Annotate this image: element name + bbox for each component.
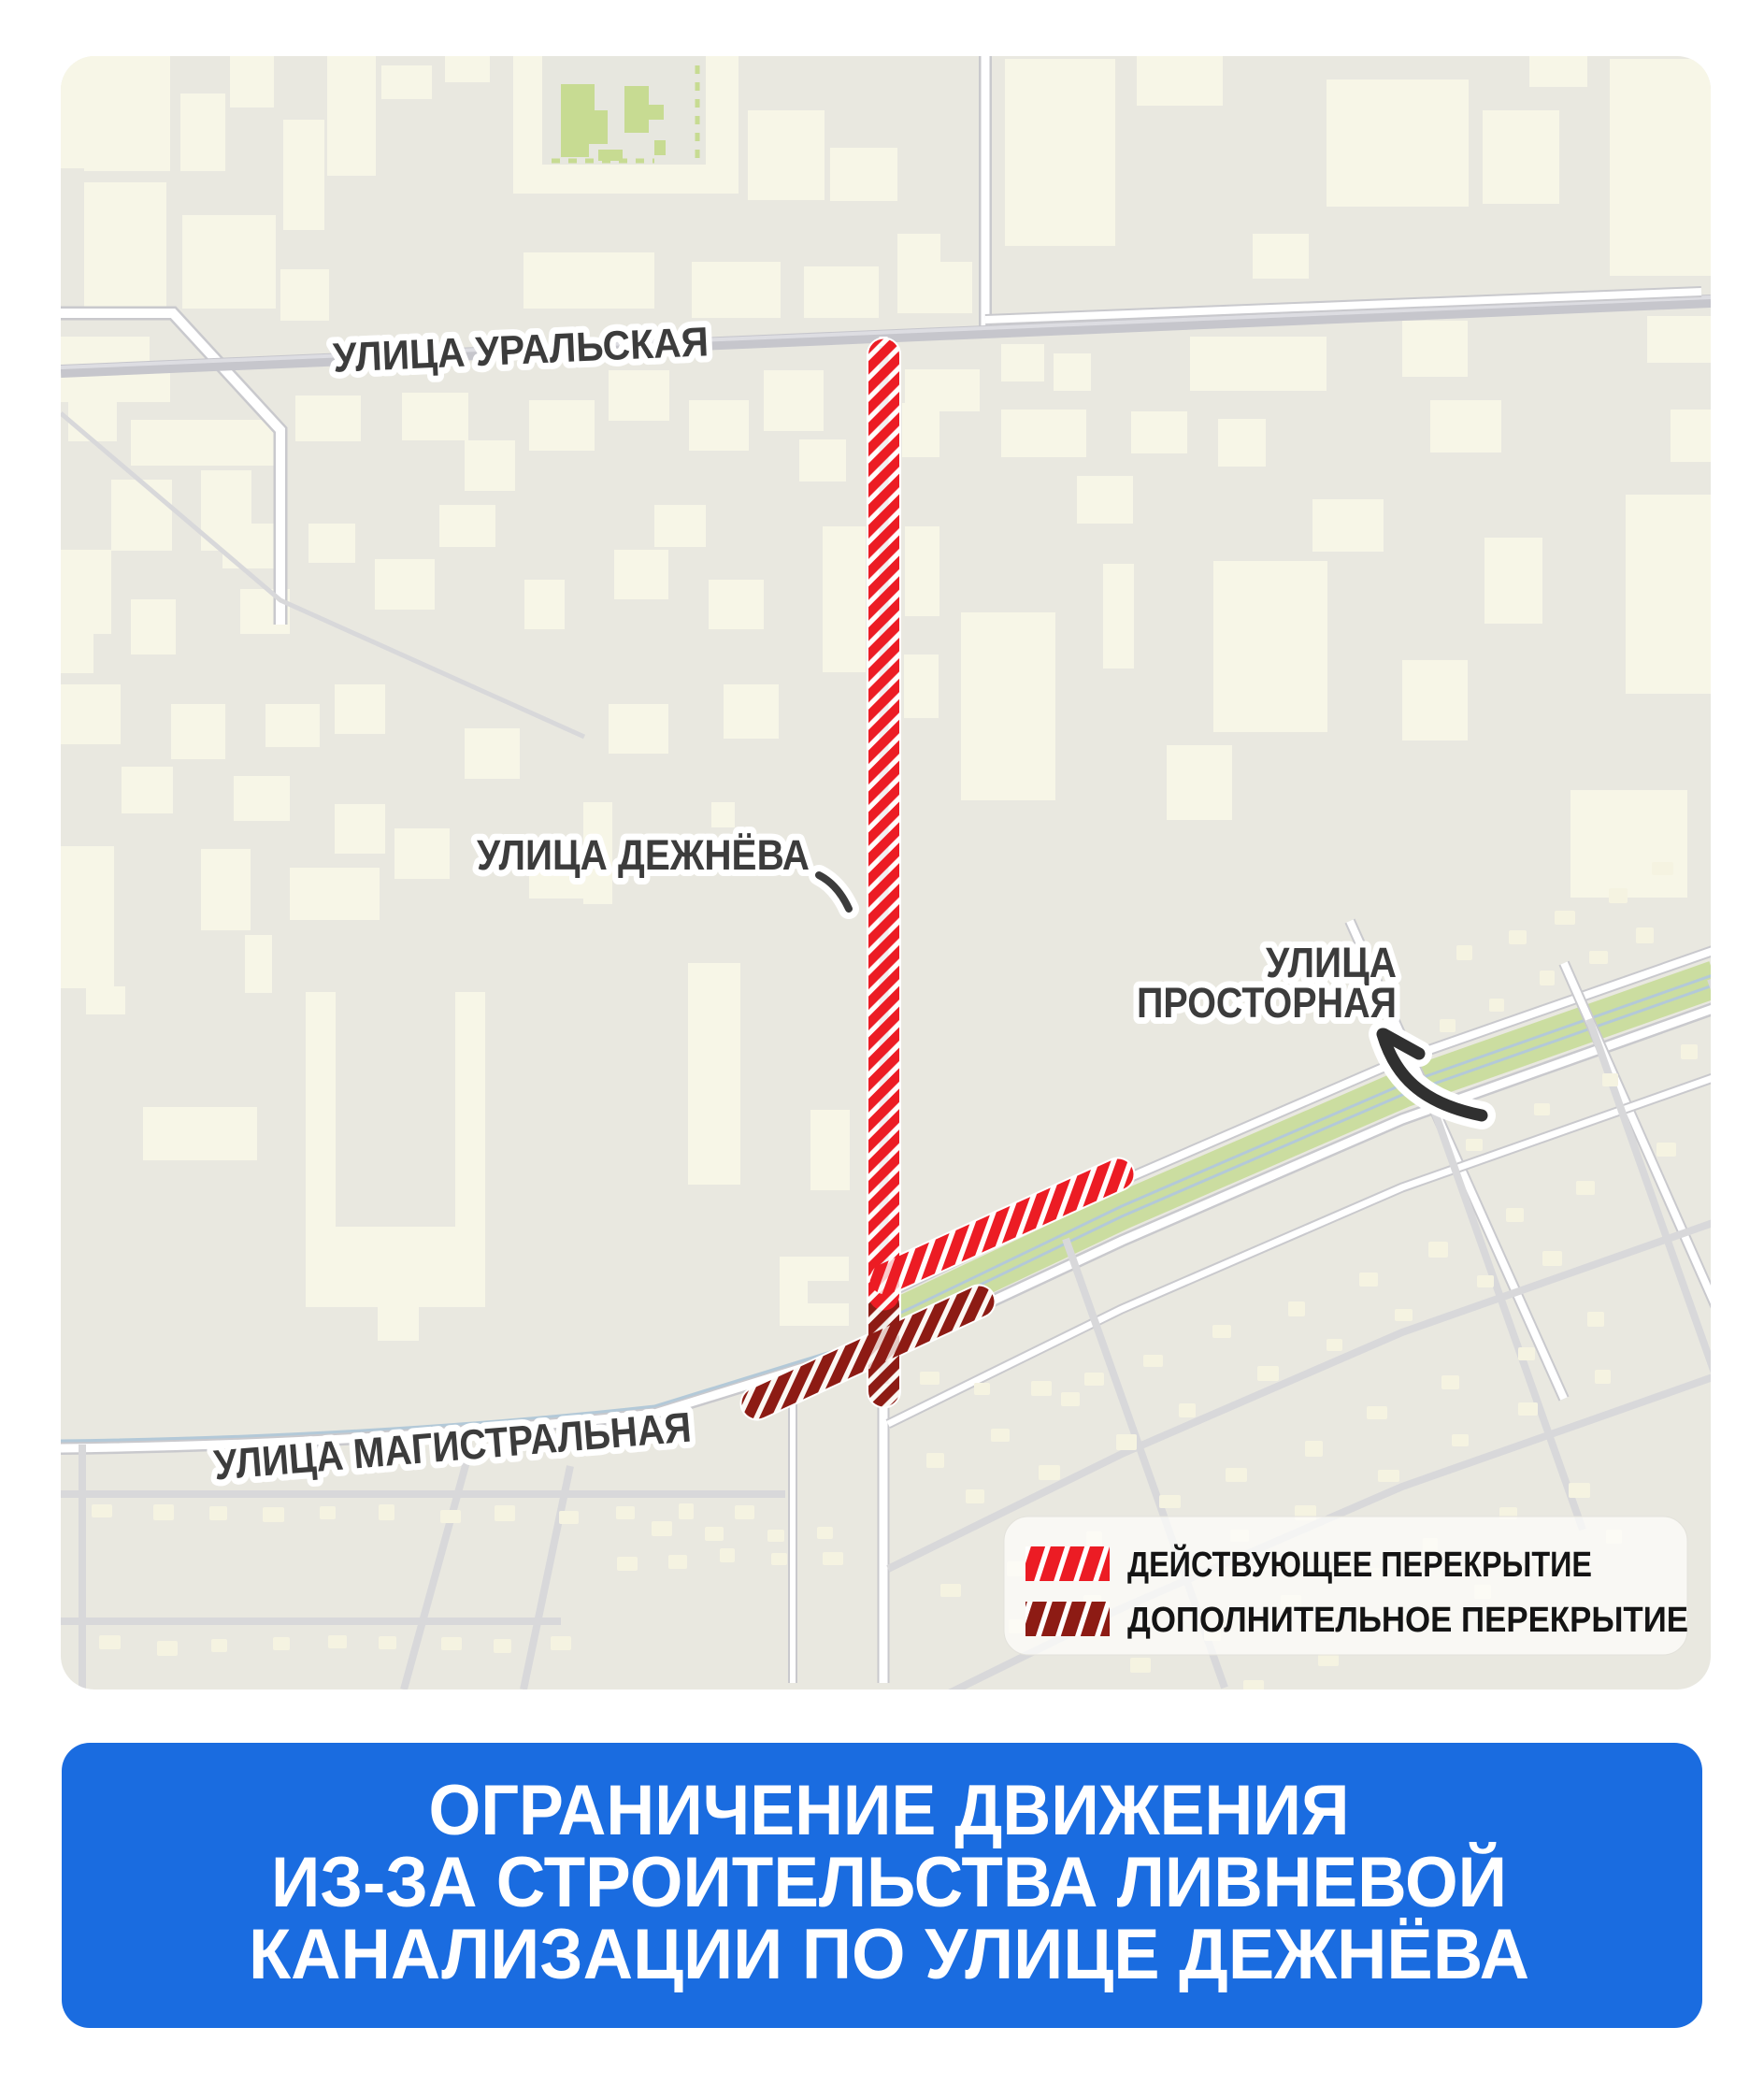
svg-text:ПРОСТОРНАЯ: ПРОСТОРНАЯ <box>1137 979 1397 1027</box>
svg-text:КАНАЛИЗАЦИИ ПО УЛИЦЕ ДЕЖНЁВА: КАНАЛИЗАЦИИ ПО УЛИЦЕ ДЕЖНЁВА <box>249 1915 1529 1994</box>
svg-text:ДОПОЛНИТЕЛЬНОЕ ПЕРЕКРЫТИЕ: ДОПОЛНИТЕЛЬНОЕ ПЕРЕКРЫТИЕ <box>1127 1601 1688 1640</box>
svg-text:ДЕЙСТВУЮЩЕЕ ПЕРЕКРЫТИЕ: ДЕЙСТВУЮЩЕЕ ПЕРЕКРЫТИЕ <box>1127 1543 1592 1585</box>
svg-text:УЛИЦА ДЕЖНЁВА: УЛИЦА ДЕЖНЁВА <box>477 831 810 879</box>
svg-text:ОГРАНИЧЕНИЕ ДВИЖЕНИЯ: ОГРАНИЧЕНИЕ ДВИЖЕНИЯ <box>429 1771 1350 1850</box>
svg-text:ИЗ-ЗА СТРОИТЕЛЬСТВА ЛИВНЕВОЙ: ИЗ-ЗА СТРОИТЕЛЬСТВА ЛИВНЕВОЙ <box>271 1842 1507 1922</box>
